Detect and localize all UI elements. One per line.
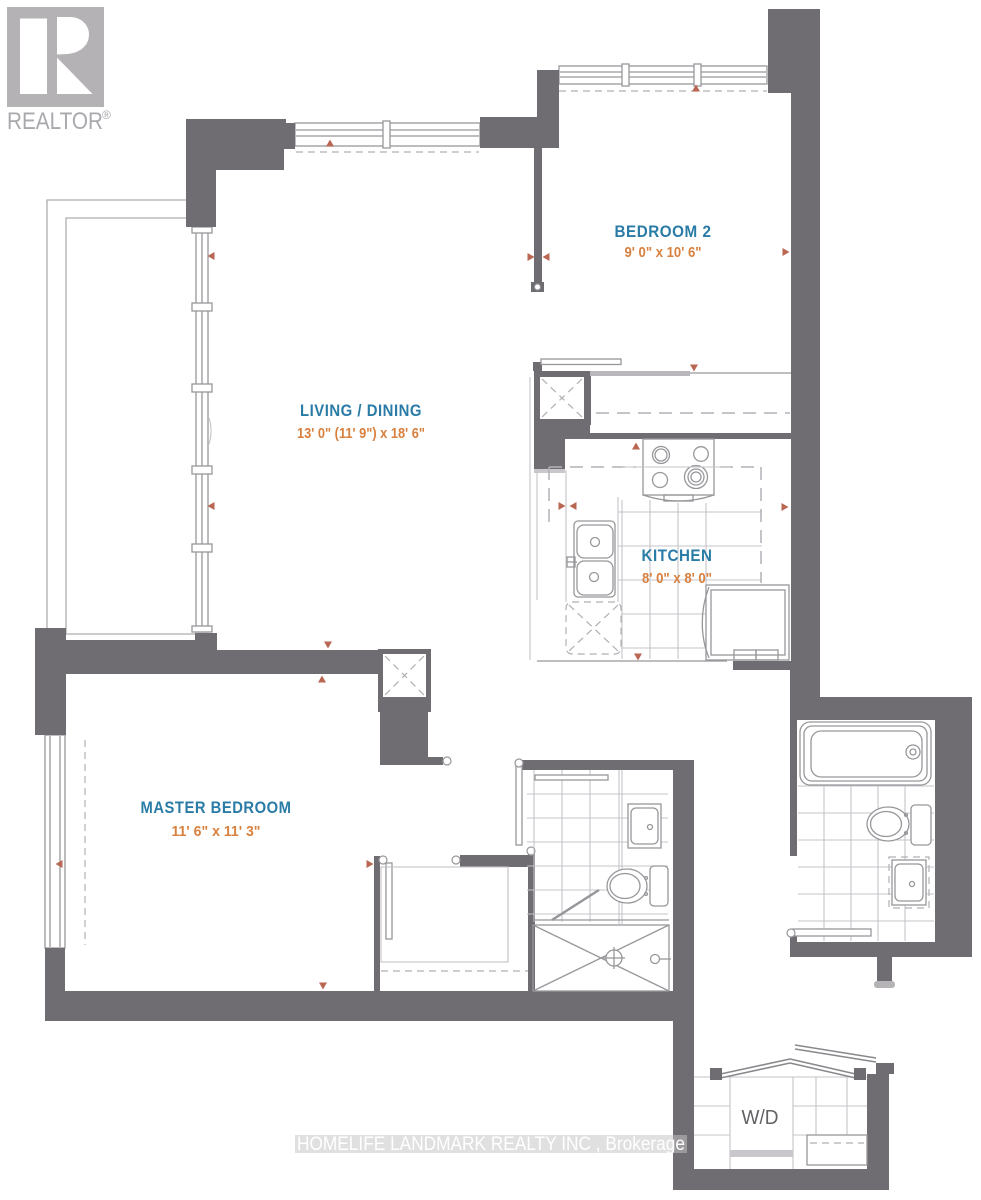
svg-text:KITCHEN: KITCHEN <box>642 546 713 565</box>
svg-text:9' 0" x 10' 6": 9' 0" x 10' 6" <box>625 244 702 261</box>
svg-text:®: ® <box>102 108 111 122</box>
svg-text:BEDROOM 2: BEDROOM 2 <box>615 222 712 241</box>
svg-text:LIVING / DINING: LIVING / DINING <box>300 401 422 420</box>
svg-text:13' 0" (11' 9") x 18' 6": 13' 0" (11' 9") x 18' 6" <box>297 425 425 442</box>
svg-text:MASTER BEDROOM: MASTER BEDROOM <box>141 798 292 817</box>
svg-text:11' 6" x 11' 3": 11' 6" x 11' 3" <box>172 823 261 840</box>
svg-text:HOMELIFE LANDMARK REALTY INC ,: HOMELIFE LANDMARK REALTY INC , Brokerage <box>297 1134 685 1155</box>
svg-text:W/D: W/D <box>742 1107 779 1129</box>
svg-text:REALTOR: REALTOR <box>7 108 103 135</box>
svg-text:8' 0" x 8' 0": 8' 0" x 8' 0" <box>642 570 712 587</box>
